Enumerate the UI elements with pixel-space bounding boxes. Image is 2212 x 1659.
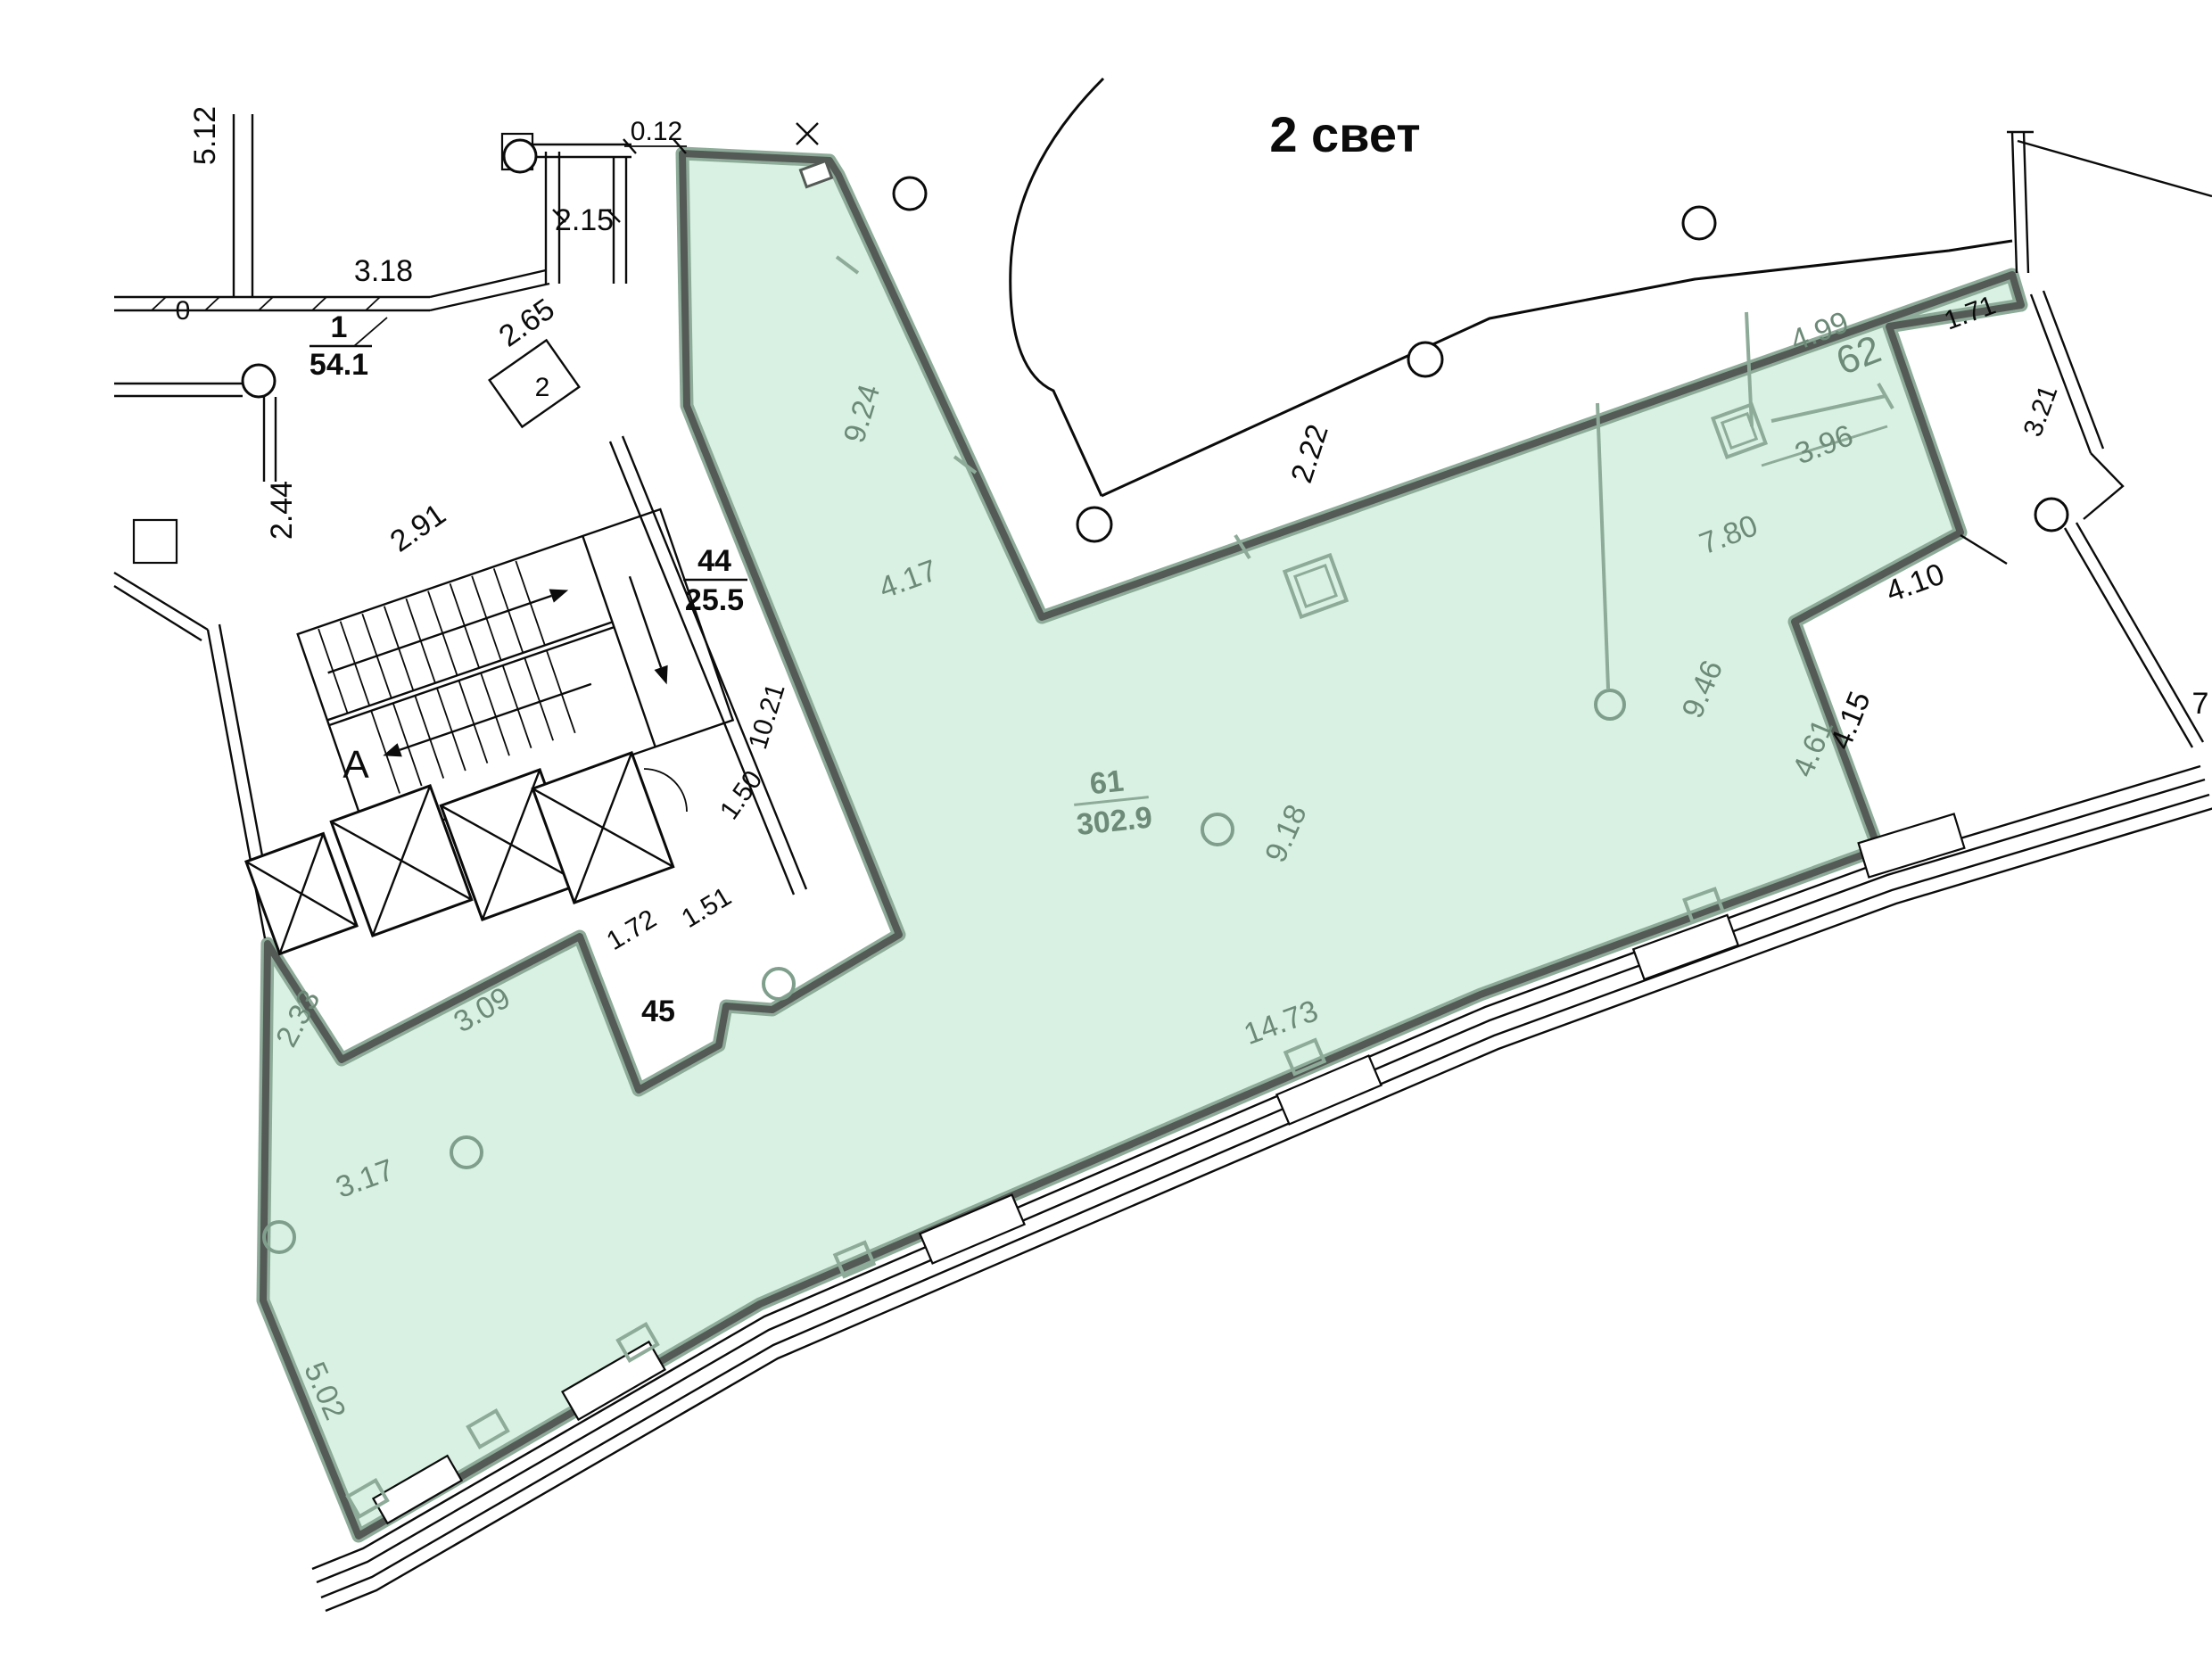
axis-label-a: A — [343, 743, 369, 787]
room1-label: 1 54.1 — [310, 310, 387, 382]
column-circle — [243, 365, 275, 397]
dim-1-51: 1.51 — [677, 882, 737, 934]
elevator-shafts — [246, 753, 673, 953]
room2-number: 2 — [535, 373, 550, 402]
dim-2-15: 2.15 — [555, 203, 614, 237]
wall-hatch — [259, 297, 273, 310]
leader-line — [354, 318, 387, 346]
wall-line — [430, 270, 546, 297]
column-circle — [1408, 343, 1442, 376]
dim-2-91: 2.91 — [384, 497, 452, 558]
wall-line — [2024, 132, 2028, 273]
wall-line — [114, 573, 208, 630]
wall-line — [2076, 523, 2203, 742]
room1-area: 54.1 — [310, 348, 368, 382]
column-circle-green — [763, 969, 794, 999]
stair-arrow — [400, 684, 591, 750]
wall-line — [2012, 132, 2017, 273]
wall-hatch — [152, 297, 166, 310]
stair-arrowhead — [655, 665, 674, 687]
column-circle — [1683, 207, 1715, 239]
wall-line — [2065, 528, 2192, 747]
column-circle — [1077, 508, 1111, 541]
wall-line — [2018, 141, 2212, 196]
dim-0-partial: 0 — [176, 296, 191, 326]
column-circle — [2035, 499, 2068, 531]
wall-line — [114, 586, 202, 640]
dim-2-44: 2.44 — [265, 481, 299, 540]
dim-10-21: 10.21 — [743, 680, 791, 752]
dim-7-partial: 7 — [2192, 687, 2209, 721]
column-box — [134, 520, 177, 563]
dim-3-21: 3.21 — [2018, 382, 2064, 441]
dim-5-12: 5.12 — [188, 106, 222, 165]
floor-plan-page: 2 свет 5.12 3.18 2.15 0.12 2.65 2 2.44 2… — [0, 0, 2212, 1659]
room61-number: 61 — [1088, 764, 1126, 802]
wall-line — [1960, 535, 2007, 564]
room1-number: 1 — [331, 310, 348, 344]
dim-0-12: 0.12 — [631, 117, 682, 146]
stair-arrow — [630, 576, 661, 667]
dim-3-18: 3.18 — [354, 254, 413, 288]
elevator-4 — [246, 834, 357, 954]
dim-1-72: 1.72 — [602, 904, 662, 956]
wall-line — [2084, 453, 2123, 519]
wall-line — [2043, 291, 2103, 449]
dim-2-22: 2.22 — [1284, 420, 1335, 487]
atrium-title: 2 свет — [1269, 106, 1420, 162]
room45-number: 45 — [641, 995, 675, 1028]
stair-ste​ps-lower — [371, 650, 575, 793]
wall-hatch — [205, 297, 219, 310]
wall-hatch — [366, 297, 380, 310]
column-circle — [504, 140, 536, 172]
room44-area: 25.5 — [685, 583, 744, 617]
floor-plan-canvas: 2 свет 5.12 3.18 2.15 0.12 2.65 2 2.44 2… — [0, 0, 2212, 1659]
wall-hatch — [312, 297, 326, 310]
atrium-curve — [1011, 78, 1103, 496]
room44-label: 44 25.5 — [683, 544, 747, 617]
column-circle — [894, 177, 926, 210]
room44-number: 44 — [697, 544, 731, 578]
stair-landing-line — [582, 536, 655, 747]
stair-arrowhead — [549, 583, 571, 603]
